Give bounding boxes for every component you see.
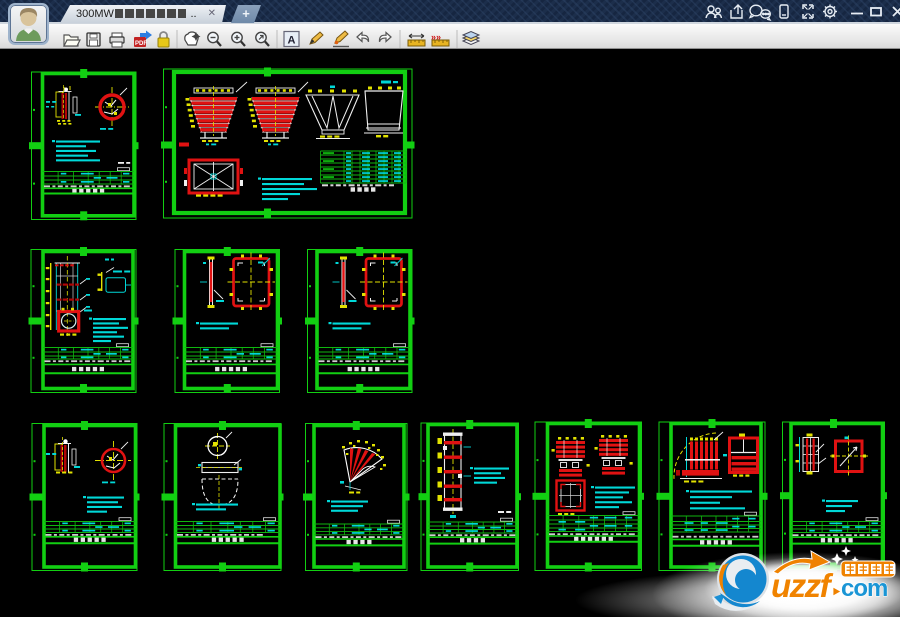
svg-text:uzzf: uzzf xyxy=(771,567,834,604)
svg-text:A: A xyxy=(288,35,296,47)
svg-text:PDF: PDF xyxy=(135,41,147,47)
svg-text:com: com xyxy=(841,575,887,602)
